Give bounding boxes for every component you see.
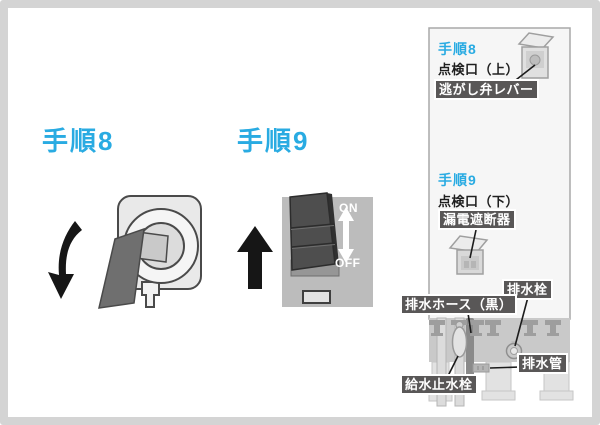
breaker-window [303, 291, 330, 303]
water-supply-stop-valve-label: 給水止水栓 [400, 374, 478, 395]
step8-heading: 手順8 [42, 128, 114, 154]
arrow-down-curved-icon [48, 221, 82, 299]
arrow-up-icon [237, 226, 273, 289]
breaker-on-label: ON [339, 202, 358, 214]
relief-valve-lever-illustration [38, 185, 210, 320]
breaker-switch-illustration [225, 188, 385, 315]
inspection-port-upper-label: 点検口（上） [438, 63, 519, 76]
leakage-breaker-label: 漏電遮断器 [438, 209, 516, 230]
stop-valve-body [453, 327, 467, 357]
step9-heading: 手順9 [237, 128, 309, 154]
breaker-lever [290, 193, 335, 270]
valve-tab [142, 282, 159, 307]
manual-page: 手順8 手順9 [0, 0, 600, 425]
valve-lever-handle [99, 229, 144, 308]
inspection-port-lower-label: 点検口（下） [438, 195, 519, 208]
relief-valve-lever-label: 逃がし弁レバー [434, 79, 539, 100]
drain-hose-label: 排水ホース（黒） [400, 294, 517, 315]
drain-pipe-shape [473, 364, 489, 372]
breaker-off-label: OFF [335, 257, 361, 269]
unit-step9-title: 手順9 [438, 173, 477, 187]
drain-pipe-label: 排水管 [517, 353, 568, 374]
inspection-port-upper-icon [519, 33, 553, 78]
unit-step8-title: 手順8 [438, 42, 477, 56]
